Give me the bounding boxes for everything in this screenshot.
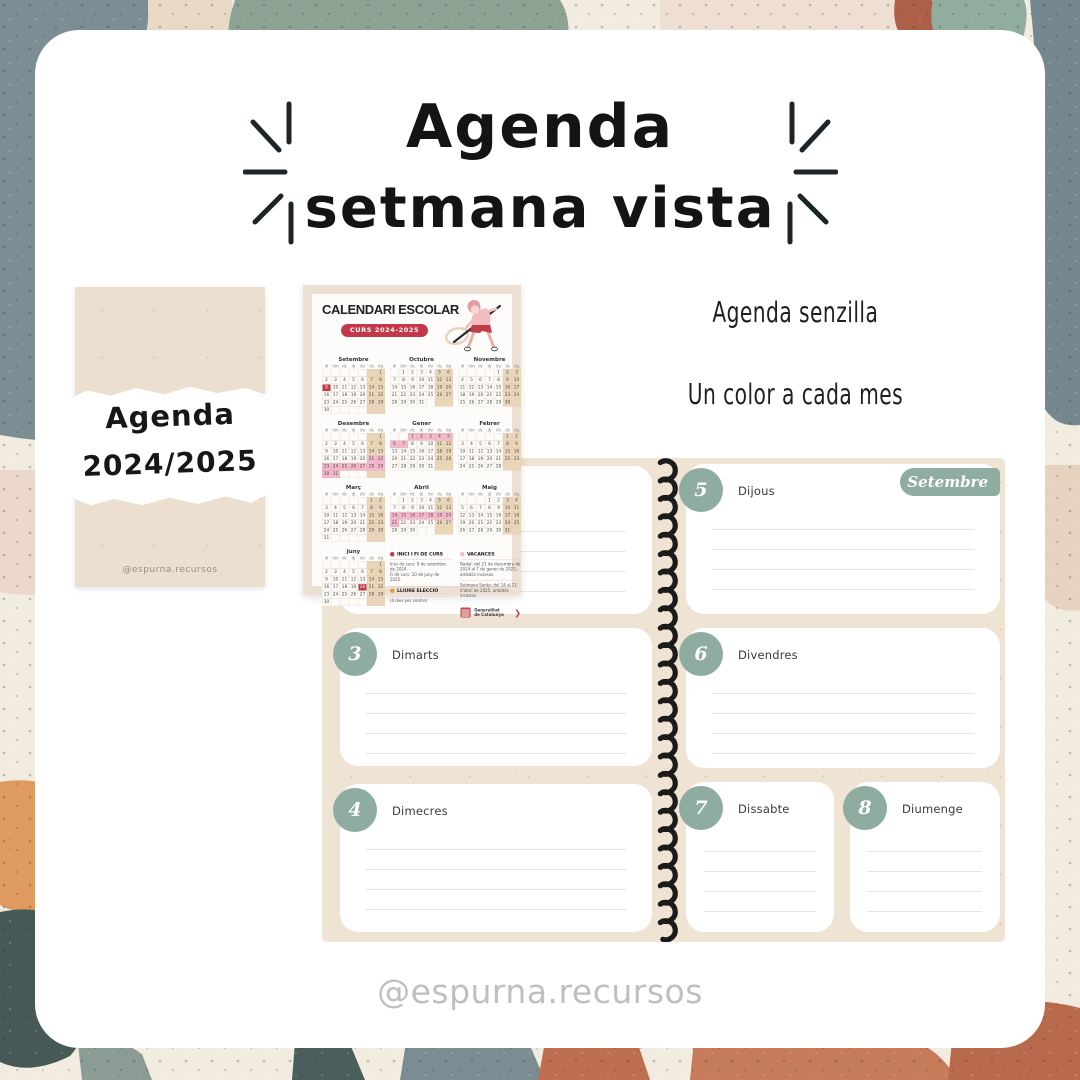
day-cell: 2 bbox=[376, 497, 385, 505]
day-cell: 29 bbox=[399, 527, 408, 535]
day-cell: 3 bbox=[426, 433, 435, 441]
day-cell: 3 bbox=[417, 369, 426, 377]
day-cell: 28 bbox=[390, 399, 399, 407]
day-cell: 11 bbox=[458, 384, 467, 392]
school-calendar-months: Setembredldmdcdjdvdsdg123456789101112131… bbox=[322, 356, 521, 584]
day-cell: 14 bbox=[358, 512, 367, 520]
day-cell: 6 bbox=[349, 505, 358, 513]
day-cell: 14 bbox=[390, 384, 399, 392]
day-cell: 22 bbox=[376, 584, 385, 592]
day-cell: 25 bbox=[340, 591, 349, 599]
cover-credit: @espurna.recursos bbox=[75, 565, 265, 575]
day-cell: 18 bbox=[512, 512, 521, 520]
mini-month-grid: dldmdcdjdvdsdg12345678910111213141516171… bbox=[322, 492, 385, 543]
day-cell: 1 bbox=[376, 369, 385, 377]
mini-month: Desembredldmdcdjdvdsdg123456789101112131… bbox=[322, 420, 385, 478]
day-cell: 20 bbox=[467, 520, 476, 528]
day-cell: 19 bbox=[444, 448, 453, 456]
day-cell: 24 bbox=[426, 456, 435, 464]
day-cell: 7 bbox=[494, 441, 503, 449]
day-cell: 22 bbox=[399, 520, 408, 528]
school-calendar-header: CALENDARI ESCOLAR CURS 2024-2025 bbox=[322, 302, 447, 337]
generalitat-logo-text: Generalitat de Catalunya bbox=[474, 608, 504, 617]
day-cell: 1 bbox=[376, 561, 385, 569]
day-cell: 23 bbox=[408, 392, 417, 400]
day-cell: 8 bbox=[408, 441, 417, 449]
day-cell bbox=[435, 527, 444, 535]
day-cell bbox=[331, 369, 340, 377]
day-cell: 16 bbox=[408, 384, 417, 392]
day-cell: 10 bbox=[458, 448, 467, 456]
day-cell: 5 bbox=[467, 377, 476, 385]
day-cell: 26 bbox=[349, 463, 358, 471]
day-cell: 11 bbox=[340, 576, 349, 584]
day-cell: 22 bbox=[408, 456, 417, 464]
day-cell: 2 bbox=[322, 377, 331, 385]
mini-month-name: Gener bbox=[390, 420, 453, 427]
day-cell bbox=[349, 535, 358, 543]
day-cell: 24 bbox=[503, 520, 512, 528]
day-cell: 1 bbox=[399, 497, 408, 505]
day-cell: 12 bbox=[435, 505, 444, 513]
day-cell: 19 bbox=[340, 520, 349, 528]
day-cell: 25 bbox=[467, 463, 476, 471]
day-cell bbox=[340, 599, 349, 607]
day-cell: 2 bbox=[322, 569, 331, 577]
day-cell: 20 bbox=[485, 456, 494, 464]
day-cell bbox=[476, 369, 485, 377]
day-cell: 23 bbox=[512, 456, 521, 464]
day-cell: 8 bbox=[376, 377, 385, 385]
inici-label: INICI I FI DE CURS bbox=[397, 552, 443, 558]
day-cell bbox=[349, 433, 358, 441]
day-cell: 14 bbox=[367, 448, 376, 456]
day-cell: 29 bbox=[408, 463, 417, 471]
day-cell: 7 bbox=[390, 505, 399, 513]
day-cell: 6 bbox=[485, 441, 494, 449]
day-cell: 31 bbox=[503, 527, 512, 535]
day-cell: 28 bbox=[390, 527, 399, 535]
mini-month-grid: dldmdcdjdvdsdg12345678910111213141516171… bbox=[390, 492, 453, 535]
day-cell: 15 bbox=[376, 576, 385, 584]
page-title-line2: setmana vista bbox=[35, 176, 1045, 241]
day-cell: 23 bbox=[322, 591, 331, 599]
day-cell: 10 bbox=[331, 384, 340, 392]
day-cell: 17 bbox=[322, 520, 331, 528]
calendar-legend: INICI I FI DE CURS Inici de curs: 9 de s… bbox=[390, 548, 521, 618]
day-cell: 7 bbox=[358, 505, 367, 513]
mini-month: Octubredldmdcdjdvdsdg1234567891011121314… bbox=[390, 356, 453, 414]
day-cell: 27 bbox=[485, 463, 494, 471]
day-cell: 16 bbox=[494, 512, 503, 520]
day-cell: 17 bbox=[503, 512, 512, 520]
day-cell: 20 bbox=[444, 384, 453, 392]
day-cell: 15 bbox=[399, 384, 408, 392]
generalitat-logo: Generalitat de Catalunya ❯ bbox=[460, 608, 521, 618]
day-cell bbox=[376, 599, 385, 607]
day-cell bbox=[322, 561, 331, 569]
day-cell: 2 bbox=[512, 433, 521, 441]
day-cell bbox=[349, 407, 358, 415]
day-cell: 9 bbox=[322, 576, 331, 584]
day-cell: 6 bbox=[476, 377, 485, 385]
day-cell: 12 bbox=[349, 384, 358, 392]
day-cell: 4 bbox=[426, 497, 435, 505]
day-cell: 6 bbox=[467, 505, 476, 513]
day-cell: 28 bbox=[399, 463, 408, 471]
day-cell bbox=[340, 561, 349, 569]
day-cell: 7 bbox=[367, 569, 376, 577]
day-number-badge: 4 bbox=[333, 788, 377, 832]
day-cell: 8 bbox=[376, 569, 385, 577]
day-cell: 21 bbox=[367, 392, 376, 400]
day-cell: 3 bbox=[503, 497, 512, 505]
day-cell bbox=[358, 497, 367, 505]
day-cell: 20 bbox=[358, 392, 367, 400]
day-cell: 13 bbox=[476, 384, 485, 392]
day-cell: 22 bbox=[494, 392, 503, 400]
day-cell bbox=[426, 399, 435, 407]
day-cell: 12 bbox=[467, 384, 476, 392]
day-cell: 19 bbox=[458, 520, 467, 528]
day-cell bbox=[367, 599, 376, 607]
day-name-label: Dimarts bbox=[392, 648, 439, 662]
mini-month-name: Juny bbox=[322, 548, 385, 555]
day-cell: 6 bbox=[390, 441, 399, 449]
day-cell: 20 bbox=[358, 584, 367, 592]
promo-canvas: Agenda setmana vista Agenda 2024/2025 @e… bbox=[0, 0, 1080, 1080]
day-cell: 28 bbox=[367, 591, 376, 599]
day-cell: 29 bbox=[367, 527, 376, 535]
mini-month-name: Març bbox=[322, 484, 385, 491]
day-cell: 5 bbox=[458, 505, 467, 513]
day-cell: 4 bbox=[458, 377, 467, 385]
day-cell: 18 bbox=[435, 448, 444, 456]
ruled-lines bbox=[366, 674, 626, 754]
day-cell bbox=[390, 433, 399, 441]
day-cell: 30 bbox=[322, 407, 331, 415]
day-cell: 4 bbox=[340, 377, 349, 385]
day-cell: 8 bbox=[399, 377, 408, 385]
day-number-badge: 3 bbox=[333, 632, 377, 676]
day-cell: 2 bbox=[494, 497, 503, 505]
mini-month-grid: dldmdcdjdvdsdg12345678910111213141516171… bbox=[458, 428, 521, 471]
day-cell: 5 bbox=[349, 569, 358, 577]
day-cell: 10 bbox=[426, 441, 435, 449]
day-cell: 14 bbox=[367, 576, 376, 584]
day-cell: 15 bbox=[376, 448, 385, 456]
day-box-dimarts: 3 Dimarts bbox=[340, 628, 652, 766]
day-cell: 21 bbox=[390, 520, 399, 528]
day-cell: 15 bbox=[367, 512, 376, 520]
day-cell: 9 bbox=[417, 441, 426, 449]
day-cell: 26 bbox=[458, 527, 467, 535]
day-cell: 31 bbox=[417, 399, 426, 407]
school-calendar-sheet: CALENDARI ESCOLAR CURS 2024-2025 bbox=[312, 294, 512, 586]
day-cell: 5 bbox=[476, 441, 485, 449]
day-cell bbox=[467, 369, 476, 377]
day-cell: 19 bbox=[349, 392, 358, 400]
day-cell: 29 bbox=[376, 591, 385, 599]
kid-with-net-illustration bbox=[444, 298, 508, 352]
day-cell: 6 bbox=[444, 497, 453, 505]
day-cell: 27 bbox=[358, 591, 367, 599]
day-cell bbox=[390, 497, 399, 505]
day-cell: 13 bbox=[444, 377, 453, 385]
day-cell: 2 bbox=[503, 369, 512, 377]
day-cell: 17 bbox=[331, 392, 340, 400]
day-cell bbox=[349, 599, 358, 607]
day-cell: 16 bbox=[417, 448, 426, 456]
day-cell bbox=[512, 527, 521, 535]
mini-month-grid: dldmdcdjdvdsdg12345678910111213141516171… bbox=[322, 364, 385, 415]
ruled-lines bbox=[712, 510, 974, 602]
day-cell: 29 bbox=[376, 399, 385, 407]
day-cell: 3 bbox=[322, 505, 331, 513]
day-cell: 9 bbox=[322, 384, 331, 392]
day-cell: 5 bbox=[435, 369, 444, 377]
day-cell: 28 bbox=[367, 463, 376, 471]
day-cell bbox=[367, 535, 376, 543]
day-cell: 26 bbox=[467, 399, 476, 407]
day-cell: 30 bbox=[408, 399, 417, 407]
mini-month-grid: dldmdcdjdvdsdg12345678910111213141516171… bbox=[390, 428, 453, 471]
day-cell: 21 bbox=[367, 456, 376, 464]
day-cell: 15 bbox=[408, 448, 417, 456]
day-cell: 15 bbox=[399, 512, 408, 520]
day-cell: 28 bbox=[485, 399, 494, 407]
day-cell: 26 bbox=[435, 392, 444, 400]
day-cell: 27 bbox=[444, 520, 453, 528]
day-cell: 11 bbox=[426, 377, 435, 385]
day-cell: 6 bbox=[358, 441, 367, 449]
day-cell bbox=[358, 369, 367, 377]
day-cell: 16 bbox=[408, 512, 417, 520]
day-cell: 9 bbox=[376, 505, 385, 513]
day-cell bbox=[426, 527, 435, 535]
day-cell: 18 bbox=[467, 456, 476, 464]
day-cell bbox=[376, 471, 385, 479]
ruled-lines bbox=[868, 832, 982, 920]
day-cell: 23 bbox=[503, 392, 512, 400]
day-cell: 26 bbox=[349, 591, 358, 599]
day-cell bbox=[467, 497, 476, 505]
day-cell bbox=[331, 599, 340, 607]
day-cell: 26 bbox=[476, 463, 485, 471]
day-box-dissabte: 7 Dissabte bbox=[686, 782, 834, 932]
day-cell: 30 bbox=[322, 599, 331, 607]
day-cell bbox=[503, 463, 512, 471]
day-cell bbox=[476, 497, 485, 505]
day-cell: 19 bbox=[467, 392, 476, 400]
day-cell: 5 bbox=[340, 505, 349, 513]
day-cell: 27 bbox=[358, 399, 367, 407]
inici-dot-icon bbox=[390, 552, 395, 557]
day-cell: 21 bbox=[367, 584, 376, 592]
footer-handle: @espurna.recursos bbox=[35, 972, 1045, 1011]
day-cell: 25 bbox=[331, 527, 340, 535]
day-cell: 24 bbox=[331, 399, 340, 407]
day-cell bbox=[485, 369, 494, 377]
logo-line2: de Catalunya bbox=[474, 613, 504, 618]
day-cell bbox=[340, 535, 349, 543]
spark-burst-right-icon bbox=[768, 92, 838, 252]
month-tab: Setembre bbox=[900, 468, 1000, 496]
lliure-note: (4 dies per centre) bbox=[390, 596, 451, 606]
day-box-divendres: 6 Divendres bbox=[686, 628, 1000, 768]
day-cell: 24 bbox=[331, 463, 340, 471]
day-cell: 21 bbox=[476, 520, 485, 528]
day-cell bbox=[349, 369, 358, 377]
generalitat-logo-icon bbox=[461, 608, 471, 618]
day-cell: 16 bbox=[322, 456, 331, 464]
day-cell: 22 bbox=[376, 392, 385, 400]
day-cell: 10 bbox=[331, 576, 340, 584]
day-cell: 5 bbox=[349, 441, 358, 449]
day-cell: 22 bbox=[399, 392, 408, 400]
day-cell: 10 bbox=[417, 377, 426, 385]
day-cell: 30 bbox=[503, 399, 512, 407]
vacances-note1: Nadal: del 21 de desembre de 2024 al 7 d… bbox=[460, 560, 521, 581]
day-cell: 14 bbox=[399, 448, 408, 456]
day-cell: 13 bbox=[358, 448, 367, 456]
day-cell: 8 bbox=[485, 505, 494, 513]
mini-month: Abrildldmdcdjdvdsdg123456789101112131415… bbox=[390, 484, 453, 542]
legend-item-vacances: VACANCES bbox=[460, 550, 521, 560]
day-cell: 2 bbox=[322, 441, 331, 449]
day-cell: 19 bbox=[476, 456, 485, 464]
day-cell: 19 bbox=[349, 456, 358, 464]
day-cell: 3 bbox=[331, 377, 340, 385]
lliure-dot-icon bbox=[390, 588, 395, 593]
day-number-badge: 8 bbox=[843, 786, 887, 830]
day-cell: 6 bbox=[444, 369, 453, 377]
day-cell: 27 bbox=[349, 527, 358, 535]
day-cell: 17 bbox=[458, 456, 467, 464]
day-cell bbox=[367, 407, 376, 415]
ruled-lines bbox=[704, 832, 816, 920]
day-cell: 19 bbox=[435, 512, 444, 520]
ruled-lines bbox=[366, 830, 626, 920]
day-cell: 24 bbox=[458, 463, 467, 471]
day-cell: 2 bbox=[408, 369, 417, 377]
day-cell: 27 bbox=[476, 399, 485, 407]
school-calendar-badge: CURS 2024-2025 bbox=[341, 324, 428, 337]
day-cell: 30 bbox=[408, 527, 417, 535]
day-cell: 21 bbox=[485, 392, 494, 400]
mini-month-name: Desembre bbox=[322, 420, 385, 427]
day-cell bbox=[340, 497, 349, 505]
vacances-note2: Setmana Santa: del 14 al 21 d'abril de 2… bbox=[460, 581, 521, 602]
day-cell: 27 bbox=[467, 527, 476, 535]
day-cell: 7 bbox=[485, 377, 494, 385]
legend-item-lliure: LLIURE ELECCIÓ bbox=[390, 586, 451, 596]
day-cell: 19 bbox=[435, 384, 444, 392]
day-cell: 18 bbox=[331, 520, 340, 528]
day-cell: 8 bbox=[376, 441, 385, 449]
day-cell: 21 bbox=[390, 392, 399, 400]
day-cell: 12 bbox=[349, 448, 358, 456]
day-cell bbox=[349, 471, 358, 479]
day-cell: 8 bbox=[503, 441, 512, 449]
day-cell: 4 bbox=[426, 369, 435, 377]
day-cell: 16 bbox=[503, 384, 512, 392]
day-cell: 29 bbox=[399, 399, 408, 407]
day-cell: 15 bbox=[503, 448, 512, 456]
day-cell: 11 bbox=[467, 448, 476, 456]
day-cell: 1 bbox=[485, 497, 494, 505]
day-cell bbox=[331, 497, 340, 505]
day-name-label: Dimecres bbox=[392, 804, 448, 818]
day-cell: 20 bbox=[444, 512, 453, 520]
day-cell bbox=[358, 433, 367, 441]
day-cell: 24 bbox=[512, 392, 521, 400]
day-cell: 31 bbox=[331, 471, 340, 479]
day-cell bbox=[444, 527, 453, 535]
day-name-label: Divendres bbox=[738, 648, 798, 662]
day-cell: 20 bbox=[476, 392, 485, 400]
day-cell: 27 bbox=[390, 463, 399, 471]
day-cell: 1 bbox=[494, 369, 503, 377]
day-cell: 17 bbox=[426, 448, 435, 456]
day-cell: 3 bbox=[331, 569, 340, 577]
day-cell: 8 bbox=[494, 377, 503, 385]
day-cell: 4 bbox=[340, 441, 349, 449]
mini-month-grid: dldmdcdjdvdsdg12345678910111213141516171… bbox=[322, 556, 385, 607]
day-cell: 5 bbox=[444, 433, 453, 441]
day-cell bbox=[349, 561, 358, 569]
mini-month: Junydldmdcdjdvdsdg1234567891011121314151… bbox=[322, 548, 385, 618]
day-cell: 22 bbox=[503, 456, 512, 464]
day-cell: 18 bbox=[340, 392, 349, 400]
inici-note1: Inici de curs: 9 de setembre de 2024. bbox=[390, 562, 446, 572]
day-cell bbox=[444, 463, 453, 471]
day-cell: 9 bbox=[503, 377, 512, 385]
day-cell: 18 bbox=[340, 584, 349, 592]
day-cell: 4 bbox=[467, 441, 476, 449]
day-cell bbox=[512, 463, 521, 471]
day-cell: 5 bbox=[435, 497, 444, 505]
day-cell: 16 bbox=[322, 392, 331, 400]
day-cell: 6 bbox=[358, 569, 367, 577]
day-cell: 28 bbox=[358, 527, 367, 535]
day-cell: 25 bbox=[458, 399, 467, 407]
day-cell: 7 bbox=[399, 441, 408, 449]
day-cell bbox=[435, 463, 444, 471]
day-cell: 3 bbox=[331, 441, 340, 449]
vacances-dot-icon bbox=[460, 552, 465, 557]
day-cell: 28 bbox=[476, 527, 485, 535]
day-cell bbox=[322, 369, 331, 377]
day-cell: 13 bbox=[358, 384, 367, 392]
day-box-dimecres: 4 Dimecres bbox=[340, 784, 652, 932]
school-calendar-card: CALENDARI ESCOLAR CURS 2024-2025 bbox=[303, 285, 521, 595]
day-cell: 8 bbox=[367, 505, 376, 513]
day-cell: 26 bbox=[349, 399, 358, 407]
day-cell: 25 bbox=[340, 399, 349, 407]
day-cell: 21 bbox=[399, 456, 408, 464]
day-cell: 4 bbox=[435, 433, 444, 441]
day-cell: 23 bbox=[494, 520, 503, 528]
mini-month-name: Novembre bbox=[458, 356, 521, 363]
day-cell: 20 bbox=[358, 456, 367, 464]
day-cell: 30 bbox=[376, 527, 385, 535]
day-cell: 2 bbox=[417, 433, 426, 441]
day-cell: 24 bbox=[417, 520, 426, 528]
inici-note2: Fi de curs: 20 de juny de 2025. bbox=[390, 572, 439, 582]
chevron-right-icon: ❯ bbox=[514, 608, 521, 618]
day-cell: 3 bbox=[417, 497, 426, 505]
